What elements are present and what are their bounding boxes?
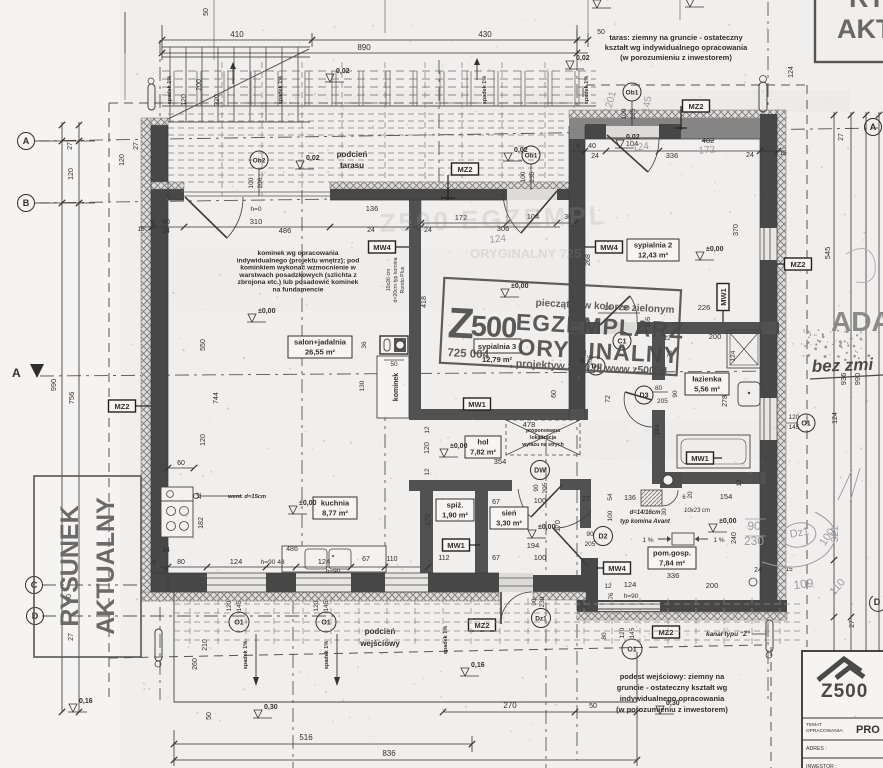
svg-text:205: 205 <box>585 541 596 548</box>
svg-text:100: 100 <box>534 496 547 505</box>
svg-text:990: 990 <box>853 373 862 386</box>
svg-text:836: 836 <box>382 749 396 758</box>
svg-text:sień: sień <box>501 509 516 518</box>
svg-text:±0,00: ±0,00 <box>258 308 276 315</box>
svg-text:spadek 1%: spadek 1% <box>243 641 249 670</box>
svg-text:podest wejściowy: ziemny na: podest wejściowy: ziemny na <box>620 672 725 681</box>
svg-text:90: 90 <box>533 484 540 492</box>
svg-text:h=0: h=0 <box>250 206 261 213</box>
svg-text:268: 268 <box>585 254 592 266</box>
svg-text:90: 90 <box>672 390 679 398</box>
svg-text:24: 24 <box>591 153 599 160</box>
svg-text:8,77 m²: 8,77 m² <box>322 509 348 518</box>
svg-text:kominek: kominek <box>393 373 400 402</box>
svg-text:D3: D3 <box>640 393 649 400</box>
svg-text:240: 240 <box>731 532 738 544</box>
svg-text:260: 260 <box>192 658 199 670</box>
svg-text:145: 145 <box>236 600 243 611</box>
svg-text:27: 27 <box>133 142 140 150</box>
svg-text:756: 756 <box>67 392 76 405</box>
svg-text:12: 12 <box>424 426 431 434</box>
svg-text:±0,00: ±0,00 <box>706 246 724 253</box>
svg-text:67: 67 <box>492 499 500 506</box>
svg-text:kształt wg indywidualnego opra: kształt wg indywidualnego opracowania <box>605 43 748 52</box>
svg-text:80: 80 <box>655 385 663 392</box>
svg-text:200: 200 <box>706 581 719 590</box>
svg-text:24: 24 <box>162 228 170 235</box>
svg-text:50: 50 <box>390 361 398 368</box>
svg-text:10x23 cm: 10x23 cm <box>684 508 710 514</box>
svg-text:Z500: Z500 <box>821 681 868 702</box>
svg-text:OPRACOWANIA:: OPRACOWANIA: <box>806 728 844 734</box>
svg-text:went. d=15cm: went. d=15cm <box>228 494 266 500</box>
svg-text:±0,00: ±0,00 <box>299 500 317 507</box>
svg-text:410: 410 <box>230 30 244 39</box>
svg-text:24: 24 <box>367 227 375 234</box>
svg-text:D2: D2 <box>599 534 608 541</box>
svg-text:486: 486 <box>279 226 292 235</box>
svg-text:h=90: h=90 <box>624 593 639 600</box>
svg-text:spadek 1%: spadek 1% <box>278 76 284 105</box>
svg-text:0,16: 0,16 <box>471 662 485 669</box>
svg-text:516: 516 <box>299 733 313 742</box>
svg-text:7,82 m²: 7,82 m² <box>470 448 496 457</box>
svg-text:spadek 1%: spadek 1% <box>324 641 330 670</box>
svg-text:Ob2: Ob2 <box>253 157 266 164</box>
svg-text:550: 550 <box>200 339 207 351</box>
svg-text:3,30 m²: 3,30 m² <box>496 519 522 528</box>
svg-text:MZ2: MZ2 <box>458 165 473 174</box>
svg-text:40: 40 <box>162 219 170 226</box>
svg-text:0,16: 0,16 <box>603 0 617 1</box>
svg-text:RYSUNEK: RYSUNEK <box>56 505 84 626</box>
svg-text:545: 545 <box>823 247 832 260</box>
svg-text:TEMAT: TEMAT <box>806 722 822 728</box>
svg-text:136: 136 <box>366 204 379 213</box>
svg-text:194: 194 <box>527 541 540 550</box>
svg-text:MW4: MW4 <box>373 243 391 252</box>
svg-text:124: 124 <box>832 412 839 424</box>
svg-text:tarasu: tarasu <box>340 161 364 170</box>
svg-text:0,16: 0,16 <box>79 698 93 705</box>
svg-text:145: 145 <box>789 424 800 431</box>
svg-text:d=14/16cm: d=14/16cm <box>630 510 662 516</box>
svg-text:120: 120 <box>68 168 75 180</box>
svg-text:12: 12 <box>736 479 743 487</box>
svg-text:A: A <box>23 136 30 146</box>
svg-text:72: 72 <box>605 395 612 403</box>
svg-text:200: 200 <box>709 332 722 341</box>
svg-text:205: 205 <box>657 398 668 405</box>
svg-text:taras: ziemny na gruncie - os: taras: ziemny na gruncie - ostateczny <box>609 33 743 42</box>
svg-text:0,02: 0,02 <box>576 55 590 62</box>
svg-text:kanał typu "Z": kanał typu "Z" <box>706 631 751 638</box>
svg-text:90: 90 <box>586 531 594 538</box>
svg-text:67: 67 <box>362 556 370 563</box>
svg-text:MW1: MW1 <box>691 454 709 463</box>
svg-text:0,02: 0,02 <box>306 155 320 162</box>
svg-text:50: 50 <box>206 712 213 720</box>
svg-text:d=20cm typ komina: d=20cm typ komina <box>393 257 399 302</box>
svg-text:40: 40 <box>588 143 596 150</box>
svg-text:182: 182 <box>198 517 205 529</box>
svg-text:500: 500 <box>470 310 517 344</box>
svg-text:370: 370 <box>733 224 740 236</box>
svg-text:RY: RY <box>849 0 883 13</box>
svg-text:418: 418 <box>421 296 428 308</box>
svg-text:100: 100 <box>534 553 547 562</box>
svg-text:230: 230 <box>539 596 546 607</box>
svg-text:MW1: MW1 <box>719 288 728 306</box>
svg-text:MZ2: MZ2 <box>115 402 130 411</box>
svg-text:MW4: MW4 <box>600 243 618 252</box>
svg-text:gruncie - ostateczny kształt: gruncie - ostateczny kształt wg <box>617 683 728 692</box>
svg-text:spadek 1%: spadek 1% <box>584 76 590 105</box>
svg-text:MW4: MW4 <box>608 564 626 573</box>
svg-text:1,90 m²: 1,90 m² <box>442 511 468 520</box>
svg-text:10x26 cm: 10x26 cm <box>386 269 392 292</box>
svg-text:170: 170 <box>555 520 562 532</box>
svg-text:7,84 m²: 7,84 m² <box>659 559 685 568</box>
svg-text:Dz1: Dz1 <box>535 615 547 622</box>
svg-text:54: 54 <box>607 493 614 501</box>
svg-text:podcień: podcień <box>337 150 368 159</box>
svg-text:172: 172 <box>698 144 716 156</box>
svg-text:typ komina Avant: typ komina Avant <box>620 519 671 525</box>
svg-text:27: 27 <box>582 496 590 503</box>
svg-text:AKTUALNY: AKTUALNY <box>92 497 120 635</box>
svg-text:990: 990 <box>49 379 58 392</box>
svg-text:336: 336 <box>667 571 680 580</box>
svg-text:(w porozumieniu z inwestorem): (w porozumieniu z inwestorem) <box>616 705 728 714</box>
svg-text:90: 90 <box>747 519 761 533</box>
svg-text:100: 100 <box>248 177 255 188</box>
svg-text:120: 120 <box>181 94 188 106</box>
svg-text:27: 27 <box>68 633 75 641</box>
svg-text:warstwach posadzkowych (szlich: warstwach posadzkowych (szlichta z <box>238 272 357 279</box>
svg-text:109: 109 <box>793 576 815 592</box>
svg-text:łazienka: łazienka <box>692 375 722 384</box>
svg-text:salon+jadalnia: salon+jadalnia <box>294 338 347 347</box>
svg-text:226: 226 <box>698 303 711 312</box>
svg-text:sypialnia 2: sypialnia 2 <box>634 241 672 250</box>
svg-text:AKT: AKT <box>837 14 883 44</box>
svg-text:120: 120 <box>119 154 126 166</box>
svg-text:5,56 m²: 5,56 m² <box>694 385 720 394</box>
svg-text:MZ2: MZ2 <box>475 621 490 630</box>
svg-text:±0,00: ±0,00 <box>719 518 737 525</box>
svg-text:136: 136 <box>624 495 636 502</box>
svg-text:145: 145 <box>323 600 330 611</box>
svg-text:235: 235 <box>529 171 536 182</box>
svg-text:12: 12 <box>604 583 612 590</box>
svg-text:ADRES :: ADRES : <box>806 746 827 752</box>
svg-text:h=90: h=90 <box>326 568 341 575</box>
svg-text:MW1: MW1 <box>468 400 486 409</box>
svg-text:60: 60 <box>177 460 185 467</box>
svg-text:O1: O1 <box>801 421 810 428</box>
svg-text:124: 124 <box>230 557 243 566</box>
svg-text:12: 12 <box>196 492 203 500</box>
svg-text:±0,00: ±0,00 <box>538 524 556 531</box>
svg-text:27: 27 <box>849 620 856 628</box>
svg-text:120: 120 <box>424 442 431 454</box>
svg-text:MW1: MW1 <box>447 541 465 550</box>
svg-text:120: 120 <box>789 414 800 421</box>
svg-text:124: 124 <box>654 424 661 435</box>
svg-text:spadek 1%: spadek 1% <box>167 76 173 105</box>
svg-text:725 004: 725 004 <box>447 347 490 361</box>
svg-text:48: 48 <box>277 559 285 566</box>
svg-text:24: 24 <box>754 567 762 574</box>
svg-text:MZ2: MZ2 <box>791 260 806 269</box>
svg-text:124: 124 <box>788 66 795 78</box>
svg-text:DW: DW <box>534 468 546 475</box>
svg-text:Ob1: Ob1 <box>626 89 639 96</box>
svg-text:120: 120 <box>226 600 233 611</box>
svg-text:INWESTOR :: INWESTOR : <box>806 764 837 768</box>
svg-text:O1: O1 <box>321 620 330 627</box>
svg-text:486: 486 <box>286 546 298 553</box>
svg-text:145: 145 <box>629 627 636 638</box>
svg-text:1 %: 1 % <box>642 537 653 544</box>
svg-text:B: B <box>23 198 30 208</box>
svg-text:130: 130 <box>359 380 366 391</box>
svg-text:478: 478 <box>523 420 536 429</box>
svg-text:124: 124 <box>318 557 331 566</box>
svg-text:wyłazu na strych: wyłazu na strych <box>521 442 564 448</box>
svg-text:205: 205 <box>542 482 549 493</box>
svg-text:210: 210 <box>202 639 209 651</box>
svg-text:zbrojona etc.) lub posadowić k: zbrojona etc.) lub posadowić kominek <box>238 279 359 286</box>
svg-text:100: 100 <box>621 108 628 119</box>
svg-text:100: 100 <box>520 171 527 182</box>
svg-text:A: A <box>870 122 877 132</box>
svg-text:50: 50 <box>203 8 210 16</box>
svg-text:D: D <box>32 611 39 621</box>
svg-text:1 %: 1 % <box>713 537 724 544</box>
svg-text:80: 80 <box>601 632 608 640</box>
svg-text:MZ2: MZ2 <box>659 628 674 637</box>
svg-text:na fundamencie: na fundamencie <box>273 287 324 294</box>
svg-text:D: D <box>874 597 881 607</box>
svg-text:spiż.: spiż. <box>447 501 464 510</box>
svg-text:67: 67 <box>492 555 500 562</box>
svg-text:12: 12 <box>424 468 431 476</box>
svg-text:80: 80 <box>177 559 185 566</box>
svg-text:26,55 m²: 26,55 m² <box>305 348 336 357</box>
svg-text:110: 110 <box>386 556 397 563</box>
svg-text:100: 100 <box>607 510 614 521</box>
svg-text:430: 430 <box>478 30 492 39</box>
svg-text:60: 60 <box>551 390 558 398</box>
svg-text:90: 90 <box>531 598 538 606</box>
svg-text:354: 354 <box>494 457 507 466</box>
svg-text:kominkiem wykonać wzmocnienie: kominkiem wykonać wzmocnienie w <box>240 265 356 272</box>
svg-text:24: 24 <box>746 152 754 159</box>
svg-text:320: 320 <box>214 94 221 106</box>
svg-text:0,30: 0,30 <box>264 704 278 711</box>
svg-text:Rondo Plus: Rondo Plus <box>400 266 406 293</box>
svg-text:lokalizacja: lokalizacja <box>530 435 556 441</box>
svg-text:170: 170 <box>425 514 432 526</box>
svg-text:27: 27 <box>838 133 845 141</box>
svg-text:(w porozumieniu z inwestorem): (w porozumieniu z inwestorem) <box>620 53 732 62</box>
svg-text:206: 206 <box>257 177 264 188</box>
svg-text:124: 124 <box>624 580 637 589</box>
svg-text:indywidualnego (projektu wnętr: indywidualnego (projektu wnętrz); pod <box>237 257 360 264</box>
svg-text:24: 24 <box>162 547 170 554</box>
svg-text:±0,00: ±0,00 <box>450 443 468 450</box>
svg-text:O1: O1 <box>234 620 243 627</box>
svg-text:podcień: podcień <box>365 627 396 636</box>
svg-text:744: 744 <box>213 392 220 404</box>
svg-text:MZ2: MZ2 <box>689 102 704 111</box>
svg-text:27: 27 <box>67 142 74 150</box>
svg-text:278: 278 <box>722 395 729 407</box>
svg-text:50: 50 <box>597 29 605 36</box>
svg-text:ORYGINALNY 725: ORYGINALNY 725 <box>470 246 581 261</box>
svg-text:154: 154 <box>720 492 733 501</box>
svg-text:336: 336 <box>666 151 679 160</box>
svg-text:200: 200 <box>196 79 203 91</box>
svg-text:bez zmi: bez zmi <box>811 355 874 376</box>
svg-text:spadek 1%: spadek 1% <box>482 76 488 105</box>
svg-text:A: A <box>12 366 21 380</box>
svg-text:235: 235 <box>630 108 637 119</box>
svg-text:kominek wg opracowania: kominek wg opracowania <box>257 250 338 257</box>
svg-text:120: 120 <box>619 627 626 638</box>
svg-text:30: 30 <box>661 508 668 516</box>
svg-text:Ob1: Ob1 <box>525 152 538 159</box>
svg-text:pom.gosp.: pom.gosp. <box>653 549 691 558</box>
svg-text:12,43 m²: 12,43 m² <box>638 251 669 260</box>
svg-text:890: 890 <box>357 43 371 52</box>
svg-text:ADA: ADA <box>831 306 883 337</box>
svg-text:50: 50 <box>589 703 597 710</box>
svg-text:0,02: 0,02 <box>336 68 350 75</box>
svg-text:O1: O1 <box>627 647 636 654</box>
svg-text:310: 310 <box>250 217 263 226</box>
svg-text:PRO: PRO <box>856 724 880 736</box>
svg-text:124: 124 <box>730 350 737 361</box>
svg-text:120: 120 <box>200 434 207 446</box>
svg-text:kuchnia: kuchnia <box>321 499 350 508</box>
svg-text:±0,00: ±0,00 <box>511 283 529 290</box>
svg-text:36: 36 <box>361 341 368 349</box>
svg-text:124: 124 <box>489 233 507 246</box>
svg-text:hol: hol <box>477 438 488 447</box>
svg-text:120: 120 <box>313 600 320 611</box>
